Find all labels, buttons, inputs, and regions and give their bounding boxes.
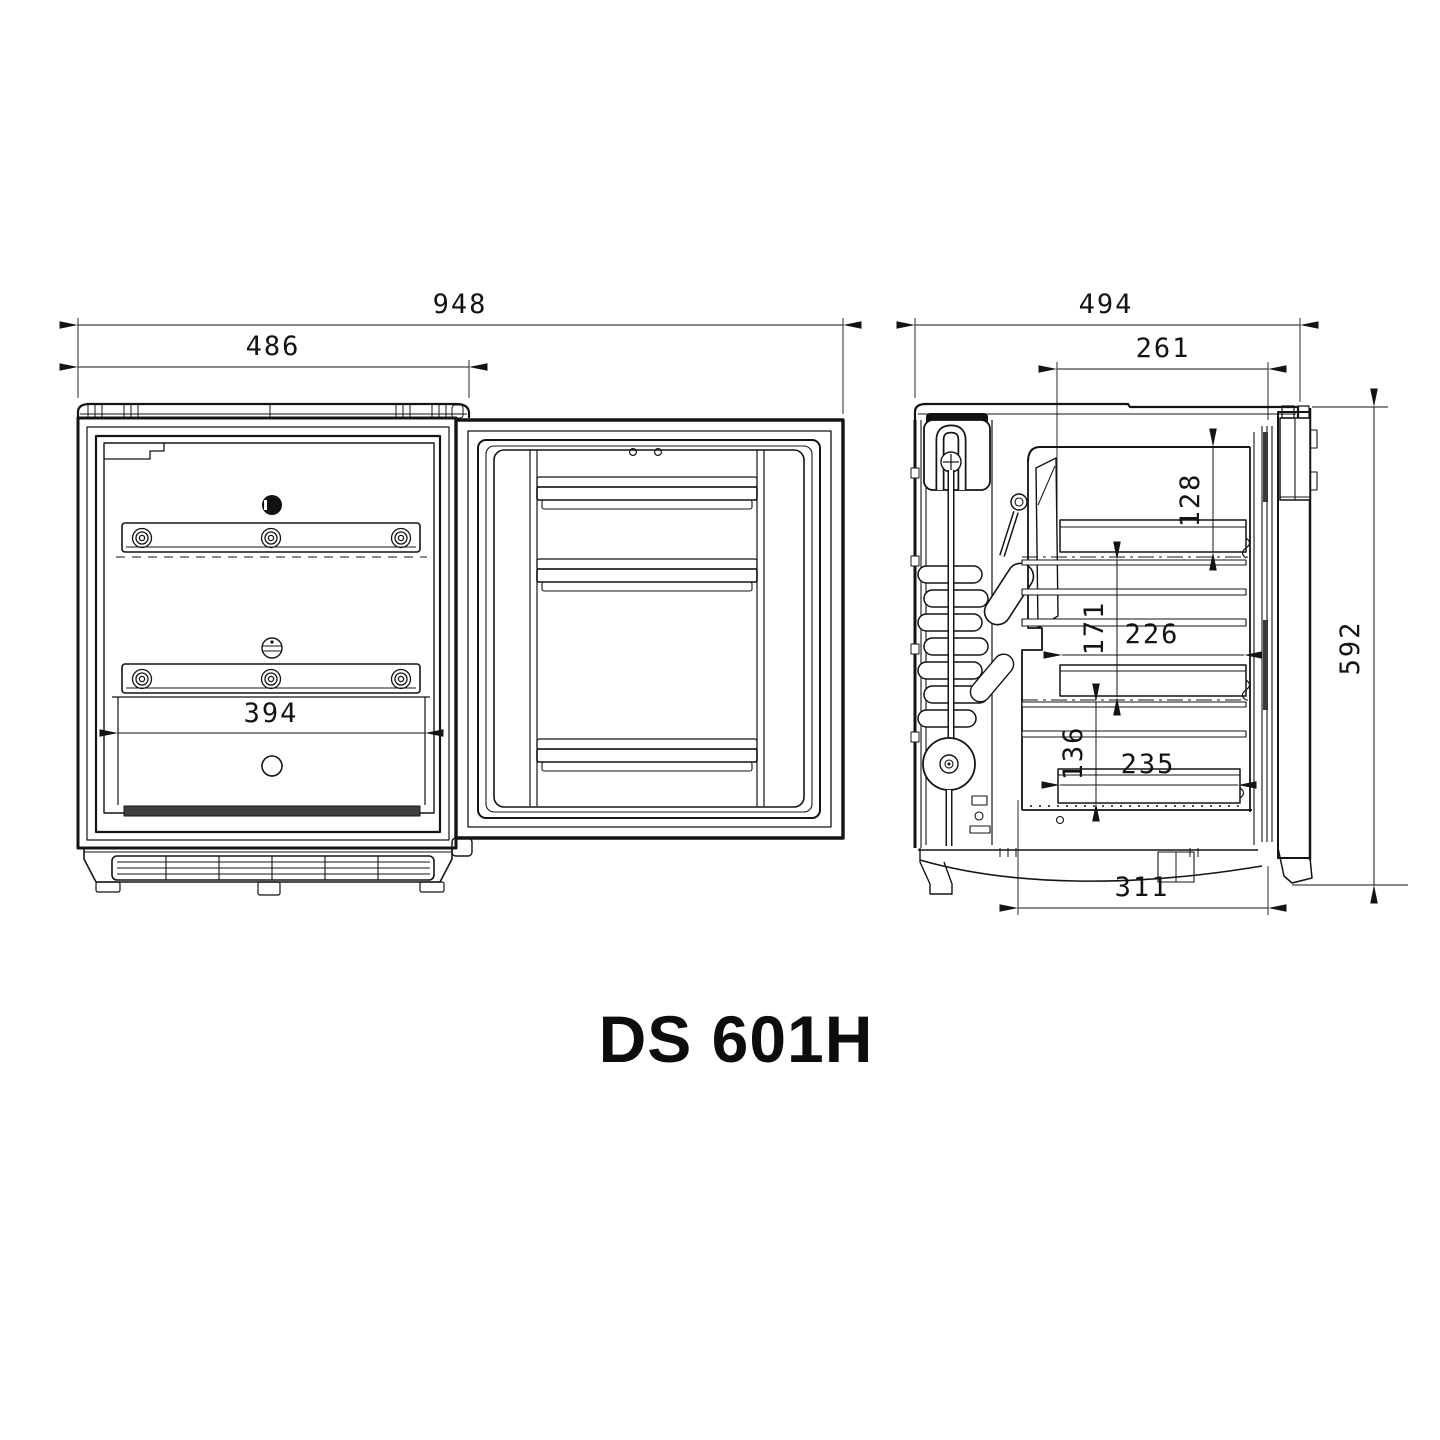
screw-icon (941, 452, 961, 472)
dim-label-136: 136 (1058, 726, 1089, 781)
door-gasket-strip (1263, 620, 1268, 710)
shelf-1 (1060, 520, 1246, 552)
pipe-fitting (1011, 494, 1027, 510)
dim-label-494: 494 (1079, 289, 1134, 320)
dim-label-128: 128 (1175, 473, 1206, 528)
dim-label-171: 171 (1079, 601, 1110, 656)
lock-icon (262, 495, 282, 515)
model-title: DS 601H (599, 1002, 874, 1076)
dim-label-592: 592 (1335, 621, 1366, 676)
bottom-strip (124, 806, 420, 816)
dim-label-486: 486 (246, 331, 301, 362)
dim-label-226: 226 (1125, 619, 1180, 650)
dim-label-311: 311 (1115, 872, 1170, 903)
dim-label-235: 235 (1121, 749, 1176, 780)
technical-drawing: 394 (0, 0, 1440, 1440)
dim-label-948: 948 (433, 289, 488, 320)
dim-label-261: 261 (1136, 333, 1191, 364)
pump-wheel (923, 738, 975, 790)
dim-label-394: 394 (244, 698, 299, 729)
shelf-2 (1060, 665, 1246, 696)
drawing-page: 394 (0, 0, 1440, 1440)
door-gasket-strip (1263, 432, 1268, 502)
background (0, 0, 1440, 1440)
